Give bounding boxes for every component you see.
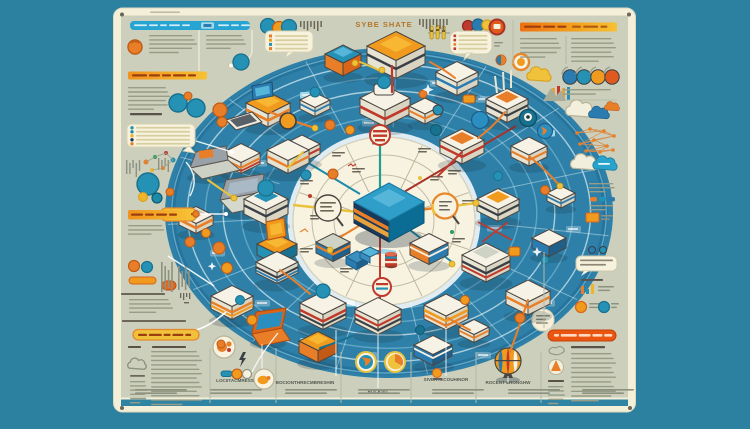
svg-text:SYBE SHATE: SYBE SHATE xyxy=(355,20,412,29)
svg-text:ROCENT LRONGHW: ROCENT LRONGHW xyxy=(486,380,532,385)
svg-text:LOCIITACMRESS: LOCIITACMRESS xyxy=(216,378,254,383)
svg-text:SIVERTECOUHINOR: SIVERTECOUHINOR xyxy=(424,377,469,382)
svg-text:BOCIONTHRECMBRESHIN: BOCIONTHRECMBRESHIN xyxy=(276,380,335,385)
